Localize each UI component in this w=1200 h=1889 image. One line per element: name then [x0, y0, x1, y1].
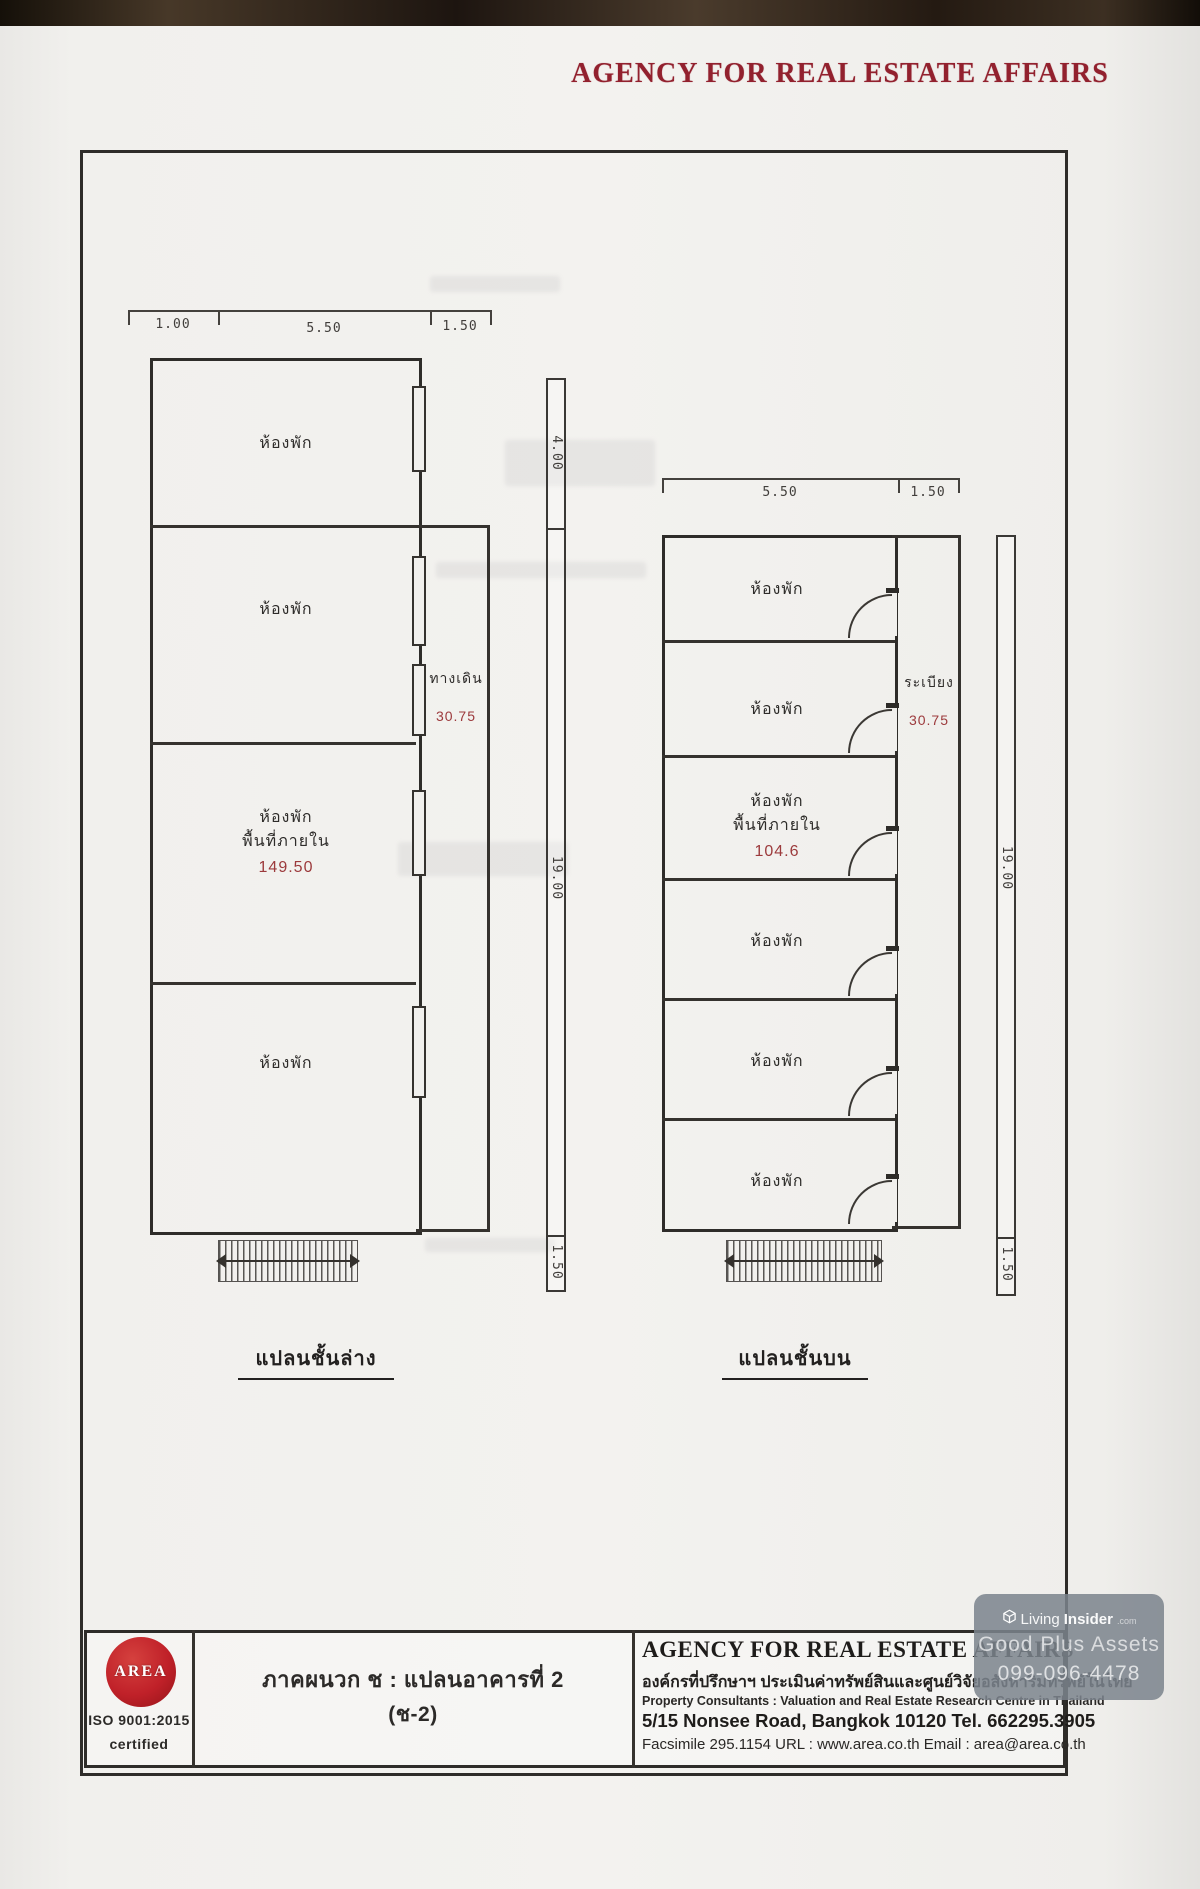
- scan-artifact: [425, 1238, 555, 1252]
- right-plan-inner-area-label: พื้นที่ภายใน: [697, 814, 857, 838]
- livinginsider-watermark: LivingInsider.com Good Plus Assets 099-0…: [974, 1594, 1164, 1700]
- dimension-tick: [128, 310, 130, 325]
- left-plan-inner-area-label: พื้นที่ภายใน: [201, 830, 371, 854]
- left-plan-side-dim-3: 1.50: [548, 1232, 564, 1292]
- watermark-brand-tld: .com: [1117, 1616, 1137, 1626]
- dimension-tick: [662, 478, 664, 493]
- scan-artifact: [505, 440, 655, 486]
- iso-certified-label: certified: [86, 1736, 192, 1752]
- corridor-area-value: 30.75: [428, 704, 484, 728]
- right-plan-wall: [662, 640, 895, 643]
- balcony-area-value: 30.75: [902, 708, 956, 732]
- dimension-tick: [490, 310, 492, 325]
- balcony-label: ระเบียง: [900, 670, 958, 694]
- dimension-divider: [546, 528, 566, 530]
- right-plan-room-label: ห้องพัก: [712, 698, 842, 722]
- livinginsider-cube-icon: [1002, 1609, 1017, 1624]
- left-plan-room-label: ห้องพัก: [216, 598, 356, 622]
- door-jamb: [886, 588, 899, 593]
- right-plan-room-label: ห้องพัก: [712, 790, 842, 814]
- right-plan-room-label: ห้องพัก: [712, 930, 842, 954]
- hatch-arrow-line: [220, 1260, 356, 1262]
- door-jamb: [886, 703, 899, 708]
- balcony-bottom-wall: [892, 1226, 961, 1229]
- appendix-title: ภาคผนวก ช : แปลนอาคารที่ 2: [198, 1662, 628, 1697]
- balcony-top-wall: [892, 535, 961, 538]
- right-plan-room-label: ห้องพัก: [712, 1050, 842, 1074]
- left-plan-room-label: ห้องพัก: [216, 806, 356, 830]
- right-plan-dim-1: 5.50: [750, 485, 810, 500]
- right-plan-room-label: ห้องพัก: [712, 1170, 842, 1194]
- arrow-right-icon: [874, 1254, 884, 1268]
- door-leaf: [412, 1006, 426, 1098]
- left-plan-top-dimension-line: [128, 310, 492, 312]
- door-jamb: [886, 1066, 899, 1071]
- area-logo-text: AREA: [114, 1663, 167, 1681]
- left-plan-side-dim-2: 19.00: [548, 848, 564, 908]
- left-plan-room-label: ห้องพัก: [216, 1052, 356, 1076]
- arrow-left-icon: [216, 1254, 226, 1268]
- footer-divider: [632, 1630, 635, 1768]
- dimension-tick: [958, 478, 960, 493]
- right-plan-room-label: ห้องพัก: [712, 578, 842, 602]
- left-plan-room-block: [150, 358, 422, 1235]
- left-plan-room-label: ห้องพัก: [216, 432, 356, 456]
- watermark-brand-suffix: Insider: [1064, 1611, 1113, 1628]
- left-plan-wall: [150, 525, 489, 528]
- right-plan-side-dim-2: 1.50: [998, 1234, 1014, 1294]
- door-jamb: [886, 1174, 899, 1179]
- footer-contact-line: Facsimile 295.1154 URL : www.area.co.th …: [642, 1736, 1058, 1753]
- area-logo: AREA: [106, 1637, 176, 1707]
- left-plan-dim-2: 5.50: [294, 321, 354, 336]
- right-plan-dim-2: 1.50: [900, 485, 956, 500]
- arrow-right-icon: [350, 1254, 360, 1268]
- iso-certification-label: ISO 9001:2015: [86, 1712, 192, 1728]
- agency-header-title: AGENCY FOR REAL ESTATE AFFAIRS: [560, 58, 1120, 90]
- right-plan-wall: [662, 878, 895, 881]
- balcony-outer-wall: [958, 535, 961, 1229]
- right-plan-side-dim-1: 19.00: [998, 838, 1014, 898]
- left-plan-inner-area-value: 149.50: [216, 856, 356, 880]
- dimension-tick: [218, 310, 220, 325]
- door-jamb: [886, 946, 899, 951]
- scan-background-strip: [0, 0, 1200, 26]
- left-plan-corridor-wall: [487, 525, 490, 1232]
- right-plan-top-dimension-line: [662, 478, 960, 480]
- scan-artifact: [430, 276, 560, 292]
- watermark-brand-prefix: Living: [1021, 1611, 1060, 1628]
- left-plan-caption: แปลนชั้นล่าง: [238, 1342, 394, 1380]
- footer-address-line: 5/15 Nonsee Road, Bangkok 10120 Tel. 662…: [642, 1710, 1058, 1732]
- footer-divider: [192, 1630, 195, 1768]
- watermark-phone: 099-096-4478: [998, 1662, 1141, 1686]
- hatch-arrow-line: [728, 1260, 880, 1262]
- left-plan-side-dimension-bar: [546, 378, 566, 1292]
- scan-artifact: [436, 562, 646, 578]
- right-plan-caption: แปลนชั้นบน: [722, 1342, 868, 1380]
- left-plan-entry-hatch: [218, 1240, 358, 1282]
- corridor-label: ทางเดิน: [424, 666, 488, 690]
- watermark-company: Good Plus Assets: [978, 1633, 1160, 1657]
- watermark-brand-row: LivingInsider.com: [1002, 1609, 1137, 1628]
- right-plan-side-dimension-bar: [996, 535, 1016, 1296]
- right-plan-wall: [662, 998, 895, 1001]
- left-plan-side-dim-1: 4.00: [548, 423, 564, 483]
- scanned-document-page: AGENCY FOR REAL ESTATE AFFAIRS 1.00 5.50…: [0, 0, 1200, 1889]
- appendix-code: (ช-2): [198, 1698, 628, 1731]
- left-plan-wall: [150, 742, 416, 745]
- door-leaf: [412, 556, 426, 646]
- right-plan-wall: [662, 755, 895, 758]
- left-plan-dim-1: 1.00: [143, 317, 203, 332]
- arrow-left-icon: [724, 1254, 734, 1268]
- right-plan-entry-hatch: [726, 1240, 882, 1282]
- door-jamb: [886, 826, 899, 831]
- door-leaf: [412, 790, 426, 876]
- door-leaf: [412, 386, 426, 472]
- right-plan-inner-area-value: 104.6: [712, 840, 842, 864]
- right-plan-wall: [662, 1118, 895, 1121]
- left-plan-dim-3: 1.50: [430, 319, 490, 334]
- left-plan-wall: [150, 982, 416, 985]
- left-plan-corridor-wall: [416, 1229, 490, 1232]
